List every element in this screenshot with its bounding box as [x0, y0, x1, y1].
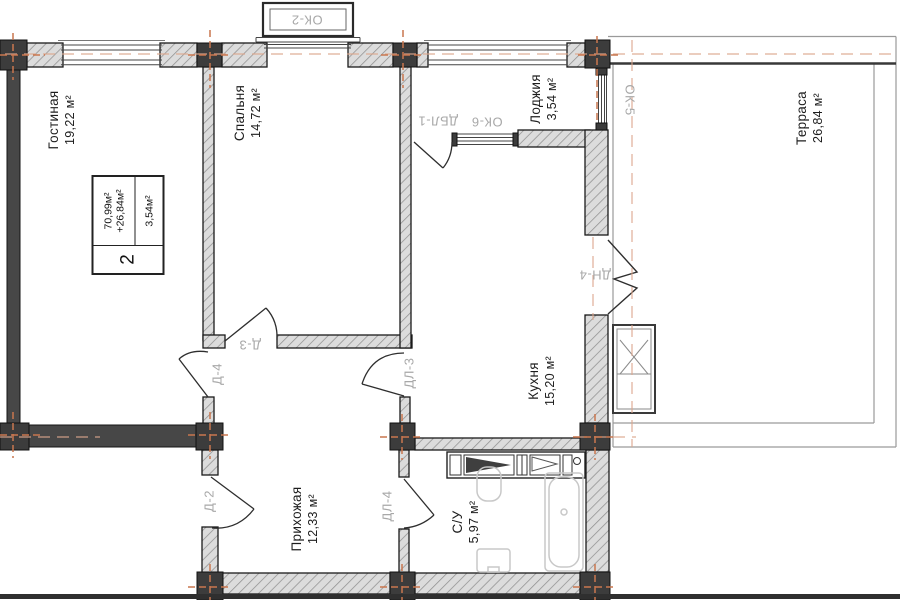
- window-living: [58, 41, 165, 65]
- tag-ok6-window: ОК-6: [471, 115, 502, 130]
- window-loggia-top: [424, 41, 571, 65]
- door-d4: [179, 351, 208, 397]
- room-name: Прихожая: [289, 487, 305, 552]
- door-d2: [211, 477, 254, 528]
- room-label-bathroom: С/У 5,97 м²: [450, 501, 482, 544]
- window-ok6: [452, 133, 518, 146]
- room-label-loggia: Лоджия 3,54 м²: [528, 74, 560, 124]
- bathtub: [545, 473, 583, 571]
- room-name: Лоджия: [528, 74, 544, 124]
- unit-area-extra: 3,54м²: [136, 177, 163, 245]
- room-name: Спальня: [232, 85, 248, 141]
- door-d3: [225, 308, 277, 341]
- tag-d4-door: Д-4: [210, 363, 225, 385]
- tag-dbl1-door: ДБЛ-1: [418, 114, 458, 129]
- tag-dn4-door: ДН-4: [579, 268, 611, 283]
- room-area: 14,72 м²: [248, 85, 264, 141]
- unit-area-main: 70,99м²: [102, 193, 114, 230]
- tag-ok5-window: ОК-5: [623, 84, 638, 115]
- room-area: 12,33 м²: [305, 487, 321, 552]
- room-label-hallway: Прихожая 12,33 м²: [289, 487, 321, 552]
- tag-dl4-door: ДЛ-4: [380, 491, 395, 522]
- floor-plan: Гостиная 19,22 м² Спальня 14,72 м² Лоджи…: [0, 0, 900, 600]
- tag-d3-door: Д-3: [239, 338, 261, 353]
- window-ok5: [596, 68, 607, 130]
- room-name: Гостиная: [46, 90, 62, 149]
- bathroom-fixtures: [477, 467, 583, 572]
- room-area: 26,84 м²: [810, 91, 826, 145]
- door-dbl1: [414, 142, 452, 168]
- room-area: 15,20 м²: [542, 356, 558, 406]
- unit-rooms-count: 2: [94, 245, 163, 273]
- door-dl4: [404, 479, 434, 528]
- room-area: 3,54 м²: [544, 74, 560, 124]
- door-dl3: [362, 353, 404, 396]
- vent-block: [447, 452, 585, 478]
- tag-dl3-door: ДЛ-3: [402, 358, 417, 389]
- tag-d2-door: Д-2: [202, 490, 217, 512]
- room-area: 19,22 м²: [62, 90, 78, 149]
- bottom-cut-line: [0, 594, 900, 599]
- unit-areas: 70,99м² +26,84м²: [94, 177, 136, 245]
- door-dn4: [608, 240, 637, 314]
- room-label-kitchen: Кухня 15,20 м²: [526, 356, 558, 406]
- unit-area-plus: +26,84м²: [114, 189, 126, 232]
- bathtub-drain: [561, 509, 567, 515]
- room-label-terrace: Терраса 26,84 м²: [794, 91, 826, 145]
- room-name: Кухня: [526, 356, 542, 406]
- window-ok2: [264, 45, 351, 49]
- terrace-equipment-box: [613, 325, 655, 413]
- room-name: С/У: [450, 501, 466, 544]
- tag-ok2-window: ОК-2: [291, 13, 322, 28]
- room-area: 5,97 м²: [466, 501, 482, 544]
- room-label-bedroom: Спальня 14,72 м²: [232, 85, 264, 141]
- room-label-living: Гостиная 19,22 м²: [46, 90, 78, 149]
- toilet: [477, 549, 510, 572]
- unit-stamp: 2 70,99м² +26,84м² 3,54м²: [92, 175, 165, 275]
- room-name: Терраса: [794, 91, 810, 145]
